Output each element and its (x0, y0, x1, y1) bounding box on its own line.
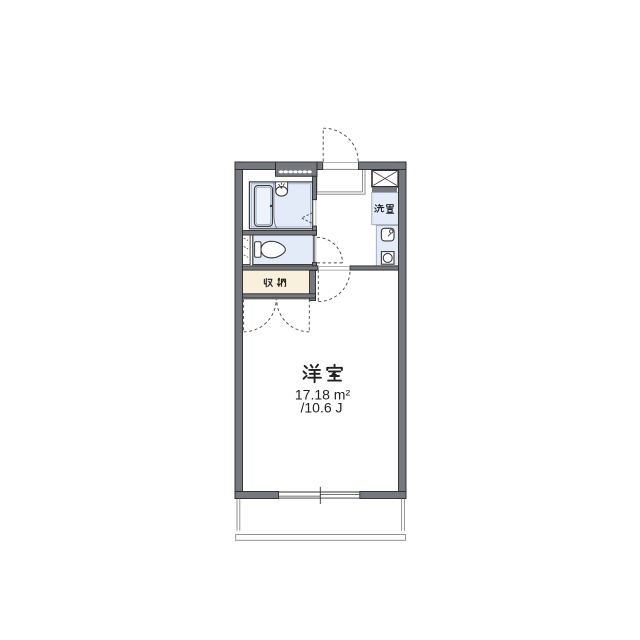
svg-text:/10.6 J: /10.6 J (300, 400, 342, 416)
